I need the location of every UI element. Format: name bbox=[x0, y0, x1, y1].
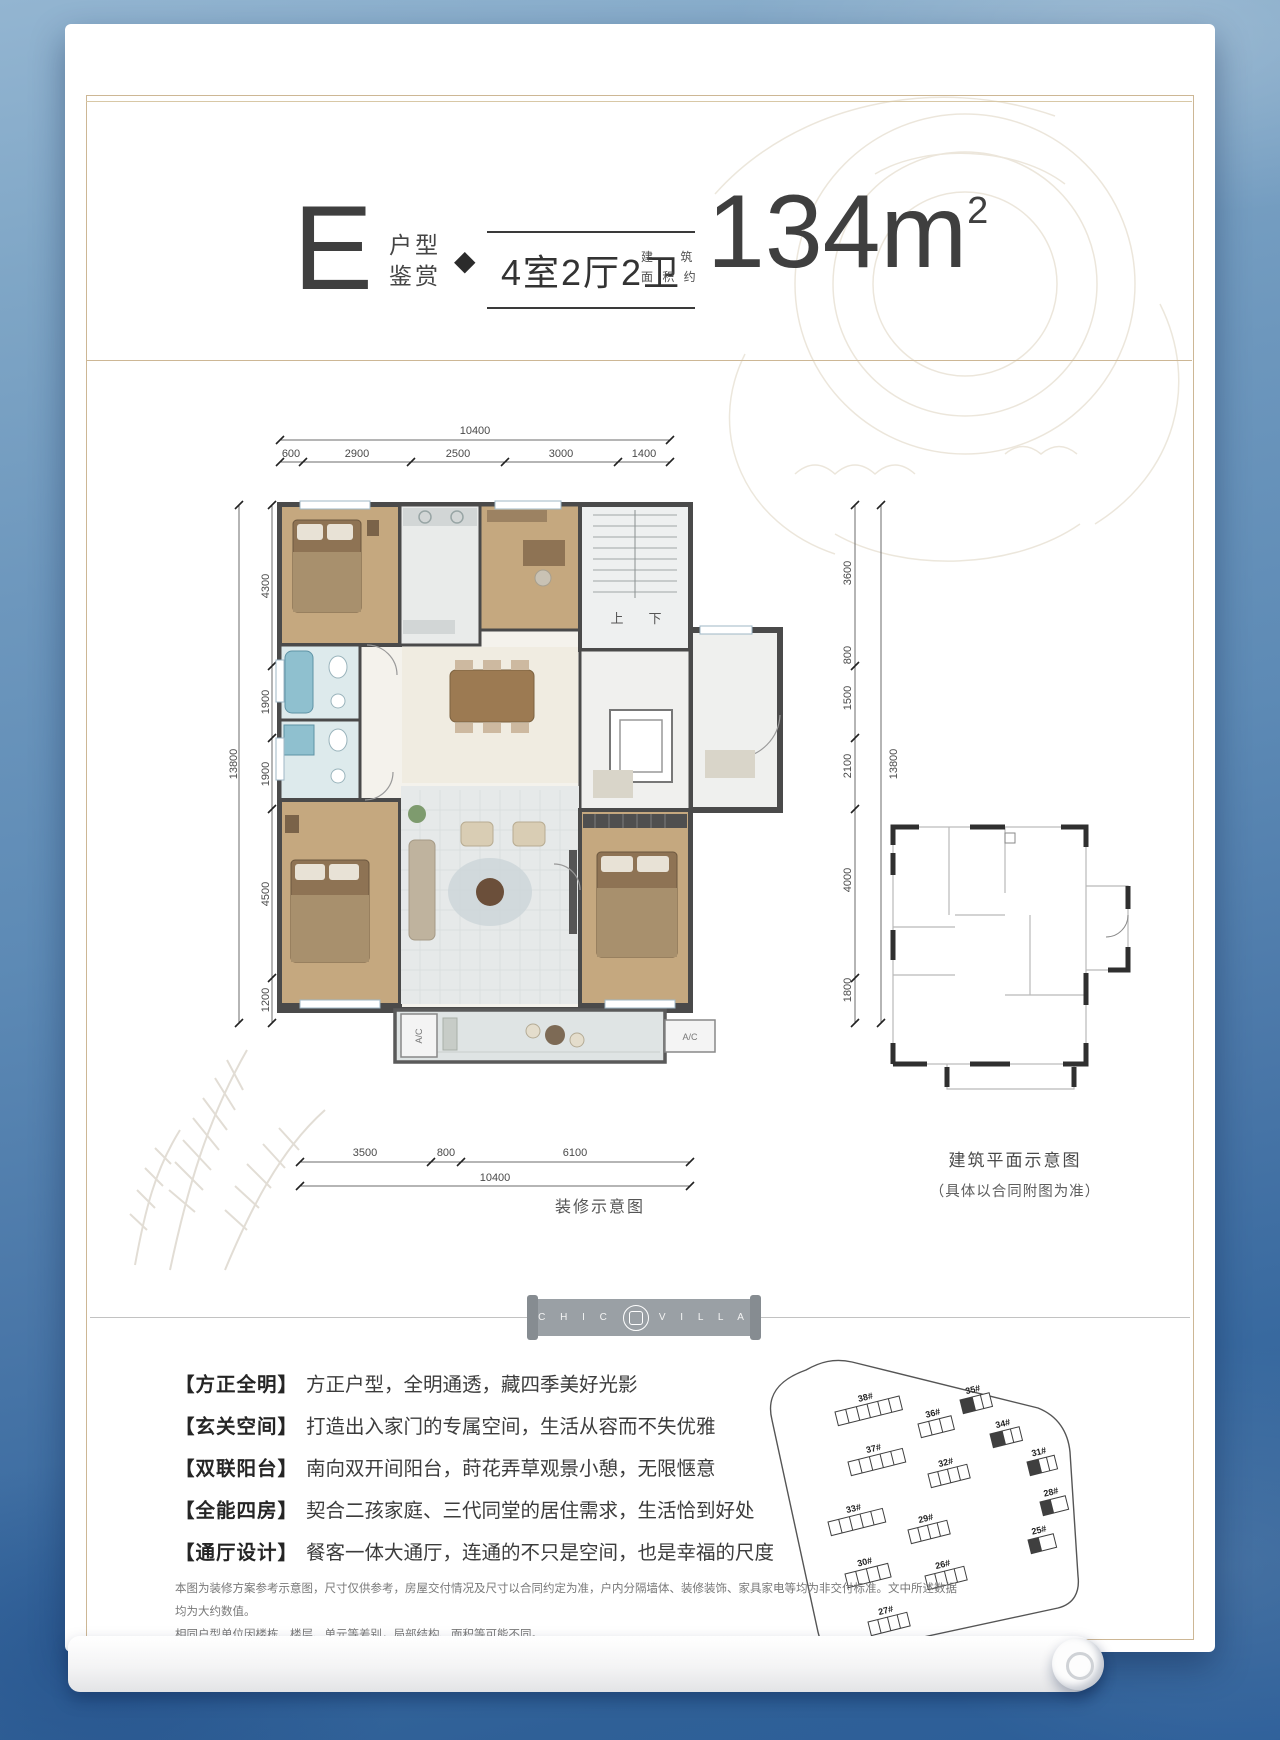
svg-text:3600: 3600 bbox=[842, 561, 854, 585]
svg-text:600: 600 bbox=[282, 448, 300, 460]
building-highlighted: 31# bbox=[1024, 1444, 1057, 1476]
svg-text:30#: 30# bbox=[856, 1555, 873, 1568]
svg-text:31#: 31# bbox=[1030, 1445, 1047, 1458]
building: 37# bbox=[845, 1437, 906, 1476]
mini-plan-walls bbox=[893, 827, 1128, 1087]
feature-list: 【方正全明】方正户型，全明通透，藏四季美好光影 【玄关空间】打造出入家门的专属空… bbox=[175, 1368, 774, 1578]
area-value: 134m2 bbox=[707, 180, 988, 284]
feature-row: 【玄关空间】打造出入家门的专属空间，生活从容而不失优雅 bbox=[175, 1410, 774, 1439]
svg-text:37#: 37# bbox=[865, 1442, 882, 1455]
plan-letter: E bbox=[293, 188, 373, 308]
building-highlighted: 35# bbox=[957, 1381, 992, 1413]
svg-text:2500: 2500 bbox=[446, 448, 470, 460]
svg-text:13800: 13800 bbox=[888, 749, 900, 780]
mini-plan-outline bbox=[893, 827, 1128, 1089]
svg-text:6100: 6100 bbox=[563, 1147, 587, 1159]
feature-tag: 【玄关空间】 bbox=[175, 1416, 298, 1438]
svg-text:26#: 26# bbox=[934, 1558, 951, 1571]
svg-text:34#: 34# bbox=[994, 1417, 1011, 1430]
plan-label-line2: 鉴赏 bbox=[389, 261, 441, 292]
svg-text:800: 800 bbox=[842, 646, 854, 664]
plan-label-line1: 户型 bbox=[389, 230, 441, 261]
stair-up-label: 上 bbox=[610, 611, 623, 626]
real-estate-floorplan-poster: { "header": { "plan_letter": "E", "plan_… bbox=[0, 0, 1280, 1740]
room-study bbox=[480, 501, 580, 630]
plan-caption: 装修示意图 bbox=[555, 1197, 645, 1216]
brand-logo-icon bbox=[623, 1305, 649, 1331]
svg-text:35#: 35# bbox=[964, 1383, 981, 1396]
svg-text:1800: 1800 bbox=[842, 978, 854, 1002]
feature-row: 【方正全明】方正户型，全明通透，藏四季美好光影 bbox=[175, 1368, 774, 1397]
ac-platform-right: A/C bbox=[665, 1020, 715, 1052]
svg-text:1500: 1500 bbox=[842, 686, 854, 710]
disclaimer-line1: 本图为装修方案参考示意图，尺寸仅供参考，房屋交付情况及尺寸以合同约定为准，户内分… bbox=[175, 1578, 960, 1624]
mini-plan-caption: 建筑平面示意图 （具体以合同附图为准） bbox=[865, 1146, 1165, 1201]
feature-tag: 【方正全明】 bbox=[175, 1374, 298, 1396]
svg-text:3500: 3500 bbox=[353, 1147, 377, 1159]
svg-text:28#: 28# bbox=[1042, 1485, 1059, 1498]
mini-plan-svg bbox=[875, 815, 1135, 1100]
feature-row: 【双联阳台】南向双开间阳台，莳花弄草观景小憩，无限惬意 bbox=[175, 1452, 774, 1481]
feature-tag: 【通厅设计】 bbox=[175, 1542, 298, 1564]
entry-wing bbox=[690, 630, 780, 810]
mini-plan-caption-line2: （具体以合同附图为准） bbox=[865, 1180, 1165, 1201]
feature-text: 打造出入家门的专属空间，生活从容而不失优雅 bbox=[306, 1416, 716, 1438]
room-bath-1 bbox=[276, 645, 360, 720]
feature-tag: 【双联阳台】 bbox=[175, 1458, 298, 1480]
building: 32# bbox=[925, 1453, 970, 1488]
building-highlighted: 34# bbox=[987, 1415, 1022, 1447]
dims-bottom: 3500 800 6100 10400 bbox=[296, 1147, 694, 1190]
poster-page: E 户型 鉴赏 ◆ 4室2厅2卫 建 筑 面 积 约 134m2 10400 6… bbox=[65, 24, 1215, 1652]
svg-text:25#: 25# bbox=[1030, 1523, 1047, 1536]
svg-text:1900: 1900 bbox=[260, 690, 272, 714]
feature-text: 方正户型，全明通透，藏四季美好光影 bbox=[306, 1374, 638, 1396]
svg-text:4500: 4500 bbox=[260, 882, 272, 906]
building: 33# bbox=[825, 1497, 886, 1536]
stair-core: 上 下 bbox=[580, 505, 690, 650]
floor-plan-svg: 10400 600 2900 2500 3000 1400 13800 4300… bbox=[225, 420, 925, 1220]
area-prefix: 建 筑 面 积 约 bbox=[641, 247, 704, 287]
brand-bar: C H I C V I L L A bbox=[533, 1299, 755, 1336]
gold-frame-topline bbox=[86, 101, 1192, 102]
room-kitchen bbox=[400, 505, 480, 645]
room-bedroom-bottom-left bbox=[280, 800, 400, 1008]
ac-label-right: A/C bbox=[682, 1032, 698, 1042]
mini-plan-caption-line1: 建筑平面示意图 bbox=[865, 1146, 1165, 1171]
feature-text: 南向双开间阳台，莳花弄草观景小憩，无限惬意 bbox=[306, 1458, 716, 1480]
ac-label-left: A/C bbox=[414, 1028, 424, 1044]
gold-frame-divider bbox=[86, 360, 1192, 361]
brand-villa: V I L L A bbox=[659, 1312, 750, 1323]
building: 29# bbox=[905, 1509, 950, 1544]
svg-text:32#: 32# bbox=[937, 1456, 954, 1469]
area-prefix-line1: 建 筑 bbox=[641, 247, 704, 267]
foyer-elevator bbox=[580, 650, 690, 810]
svg-text:38#: 38# bbox=[857, 1391, 874, 1404]
building: 36# bbox=[915, 1404, 954, 1437]
area-prefix-line2: 面 积 约 bbox=[641, 267, 704, 287]
svg-text:10400: 10400 bbox=[460, 425, 491, 437]
svg-text:13800: 13800 bbox=[228, 749, 240, 780]
plan-label: 户型 鉴赏 bbox=[389, 230, 441, 292]
area-number: 134m bbox=[707, 174, 967, 290]
ribbon-cap-left bbox=[527, 1295, 538, 1340]
living-room bbox=[401, 786, 579, 1004]
svg-text:4000: 4000 bbox=[842, 868, 854, 892]
svg-text:3000: 3000 bbox=[549, 448, 573, 460]
dims-top: 10400 600 2900 2500 3000 1400 bbox=[276, 425, 674, 466]
plan-body: 上 下 bbox=[276, 501, 780, 1062]
feature-text: 餐客一体大通厅，连通的不只是空间，也是幸福的尺度 bbox=[306, 1542, 774, 1564]
feature-text: 契合二孩家庭、三代同堂的居住需求，生活恰到好处 bbox=[306, 1500, 755, 1522]
building: 38# bbox=[832, 1384, 902, 1425]
svg-text:10400: 10400 bbox=[480, 1172, 511, 1184]
svg-text:1900: 1900 bbox=[260, 762, 272, 786]
ac-platform-left: A/C bbox=[401, 1014, 437, 1057]
room-master-bedroom bbox=[580, 810, 690, 1008]
mini-plan-door-arc bbox=[1106, 915, 1128, 937]
building-highlighted: 25# bbox=[1025, 1522, 1057, 1554]
svg-text:36#: 36# bbox=[924, 1406, 941, 1419]
feature-tag: 【全能四房】 bbox=[175, 1500, 298, 1522]
svg-text:800: 800 bbox=[437, 1147, 455, 1159]
area-sup: 2 bbox=[967, 190, 988, 232]
feature-row: 【通厅设计】餐客一体大通厅，连通的不只是空间，也是幸福的尺度 bbox=[175, 1536, 774, 1565]
room-bedroom-top-left bbox=[280, 501, 400, 645]
dining-area bbox=[402, 647, 578, 783]
feature-row: 【全能四房】契合二孩家庭、三代同堂的居住需求，生活恰到好处 bbox=[175, 1494, 774, 1523]
scroll-curl-spiral bbox=[1066, 1652, 1094, 1680]
svg-text:2900: 2900 bbox=[345, 448, 369, 460]
stair-down-label: 下 bbox=[648, 611, 661, 626]
room-bath-2 bbox=[276, 720, 360, 800]
svg-text:33#: 33# bbox=[845, 1502, 862, 1515]
scroll-curl bbox=[1052, 1638, 1104, 1690]
svg-text:1400: 1400 bbox=[632, 448, 656, 460]
svg-text:4300: 4300 bbox=[260, 574, 272, 598]
diamond-icon: ◆ bbox=[454, 244, 476, 277]
dims-left: 13800 4300 1900 1900 4500 1200 bbox=[228, 501, 276, 1027]
brand-chic: C H I C bbox=[538, 1312, 613, 1323]
svg-text:1200: 1200 bbox=[260, 988, 272, 1012]
mini-plan-shaft bbox=[1005, 833, 1015, 843]
building-highlighted: 28# bbox=[1037, 1484, 1069, 1516]
svg-text:2100: 2100 bbox=[842, 754, 854, 778]
scroll-roll bbox=[68, 1636, 1100, 1692]
svg-text:29#: 29# bbox=[917, 1512, 934, 1525]
